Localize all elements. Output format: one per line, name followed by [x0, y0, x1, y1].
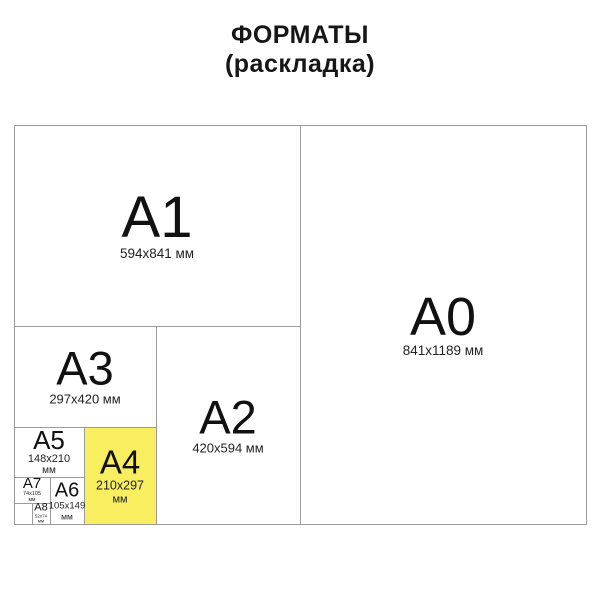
format-a5-label: A5	[28, 428, 70, 453]
format-a4-label: A4	[96, 446, 144, 479]
divider-a1-bottom	[14, 326, 301, 327]
outer-border-right	[586, 125, 587, 525]
format-a8-unit: мм	[34, 519, 47, 524]
divider-a3-a2	[156, 326, 157, 525]
format-a2-size: 420x594 мм	[192, 441, 263, 456]
format-a7-label: A7	[23, 477, 41, 491]
format-a5-size: 148x210	[28, 453, 70, 465]
format-box-a7: A7 74x105 мм	[23, 477, 41, 503]
format-box-a1: A1 594x841 мм	[120, 190, 194, 262]
format-a2-label: A2	[192, 395, 263, 441]
format-a1-label: A1	[120, 190, 194, 246]
format-box-a8: A8 52x74 мм	[34, 503, 47, 524]
format-a8-label: A8	[34, 503, 47, 514]
format-a4-unit: мм	[96, 494, 144, 507]
formats-diagram: A1 594x841 мм A0 841x1189 мм A3 297x420 …	[0, 0, 600, 600]
format-box-a0: A0 841x1189 мм	[403, 291, 484, 359]
format-a0-size: 841x1189 мм	[403, 343, 484, 359]
format-box-a6: A6 105x149 мм	[49, 481, 85, 522]
format-box-a2: A2 420x594 мм	[192, 395, 263, 456]
divider-a1-a0	[300, 125, 301, 525]
format-a3-size: 297x420 мм	[49, 392, 120, 407]
format-a6-size: 105x149	[49, 501, 85, 512]
format-a6-unit: мм	[49, 512, 85, 522]
outer-border-left	[14, 125, 15, 525]
format-a0-label: A0	[403, 291, 484, 343]
format-box-a3: A3 297x420 мм	[49, 346, 120, 407]
format-a1-size: 594x841 мм	[120, 246, 194, 262]
format-box-a5: A5 148x210 мм	[28, 428, 70, 476]
format-a6-label: A6	[49, 481, 85, 501]
format-a4-size: 210x297	[96, 479, 144, 494]
format-a3-label: A3	[49, 346, 120, 392]
format-box-a4: A4 210x297 мм	[96, 446, 144, 507]
divider-a8-left	[32, 503, 33, 525]
formats-poster: ФОРМАТЫ (раскладка) A1 594x841 мм A0 841…	[0, 0, 600, 600]
